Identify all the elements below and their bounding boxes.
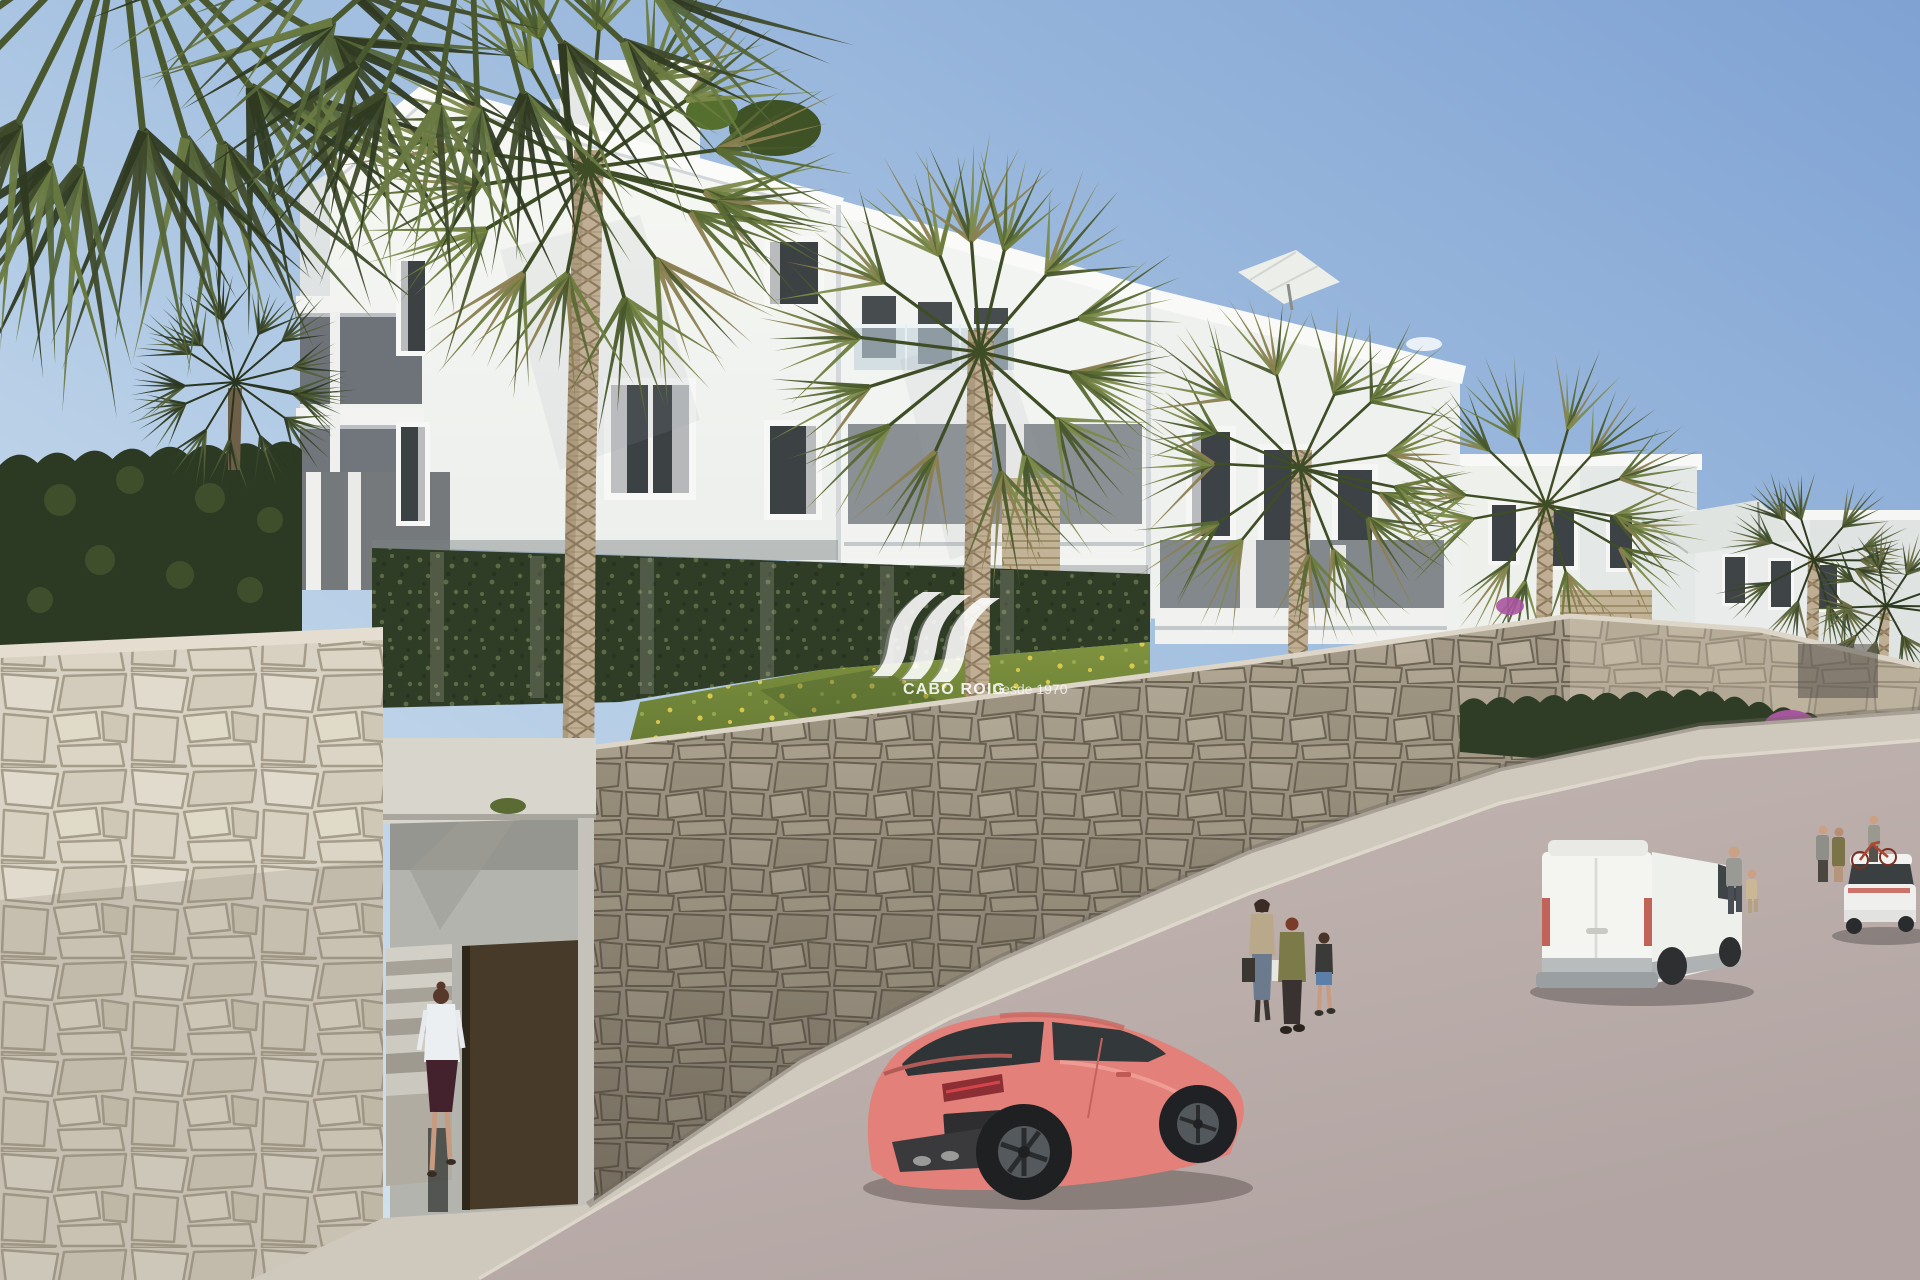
foreground-stone-wall — [0, 627, 383, 1280]
van-taillight — [1542, 898, 1550, 946]
van-door-handle — [1586, 928, 1608, 934]
rendered-photo: CABO ROIG Desde 1970 — [0, 0, 1920, 1280]
car-wheel — [1159, 1085, 1237, 1163]
van-wheel — [1657, 947, 1687, 985]
van-wheel — [1719, 937, 1741, 967]
brand-name: CABO ROIG — [903, 681, 1006, 698]
van-taillight — [1644, 898, 1652, 946]
car-wheel — [976, 1104, 1072, 1200]
hedge-left — [0, 442, 302, 660]
entrance-alcove — [378, 738, 596, 1218]
brand-tagline: Desde 1970 — [992, 681, 1068, 697]
shopping-bag — [1242, 958, 1255, 982]
entrance-door — [462, 940, 580, 1210]
